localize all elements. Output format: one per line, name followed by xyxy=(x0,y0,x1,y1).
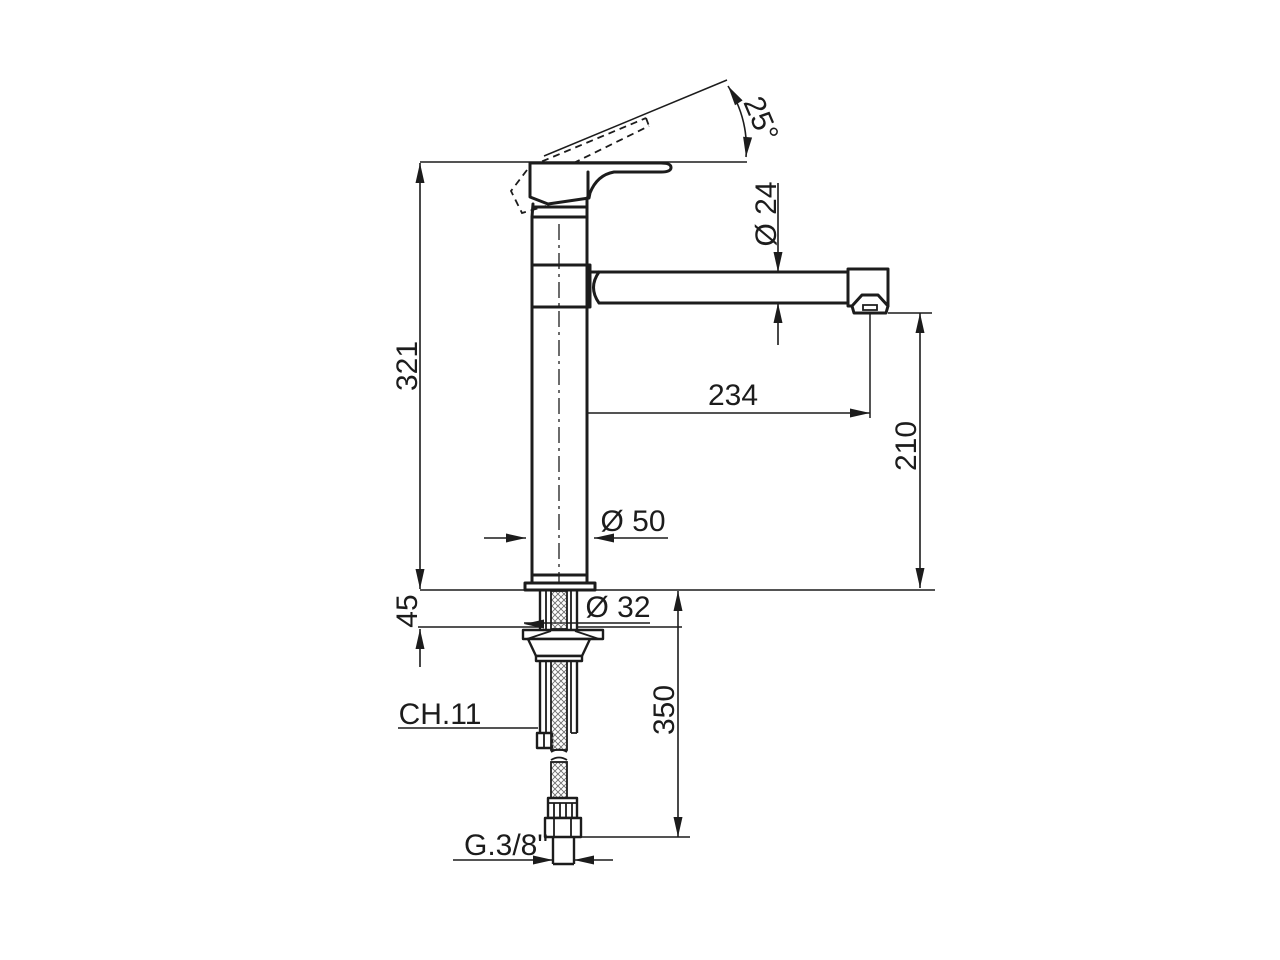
dim-spout-diameter: Ø 24 xyxy=(750,181,783,246)
dim-hose-length: 350 xyxy=(648,685,681,735)
technical-drawing-page: 321 25° Ø 24 234 210 Ø 50 45 Ø 32 CH.11 … xyxy=(0,0,1280,960)
handle-lever xyxy=(530,163,671,204)
dimension-arrowheads xyxy=(416,86,925,865)
dim-hole-diameter: Ø 32 xyxy=(585,591,650,624)
hose-hex-nut xyxy=(545,818,581,837)
label-wrench-size: CH.11 xyxy=(399,698,482,731)
flexible-hose xyxy=(551,591,567,629)
mounting-washer xyxy=(523,630,603,639)
dim-spout-reach: 234 xyxy=(708,379,758,412)
dim-deck-thickness: 45 xyxy=(391,594,424,627)
dimension-labels: 321 25° Ø 24 234 210 Ø 50 45 Ø 32 CH.11 … xyxy=(391,92,923,862)
dim-base-diameter: Ø 50 xyxy=(600,505,665,538)
extension-lines xyxy=(398,80,935,860)
dim-total-height: 321 xyxy=(391,341,424,391)
label-connection-thread: G.3/8" xyxy=(464,829,548,862)
faucet-outline xyxy=(525,163,888,590)
spout-tube xyxy=(590,272,848,303)
dim-outlet-height: 210 xyxy=(890,421,923,471)
undercounter-assembly xyxy=(523,590,603,864)
base-plate xyxy=(525,583,595,590)
mounting-nut xyxy=(528,639,590,656)
faucet-dimension-drawing: 321 25° Ø 24 234 210 Ø 50 45 Ø 32 CH.11 … xyxy=(0,0,1280,960)
thread-end xyxy=(553,837,574,864)
